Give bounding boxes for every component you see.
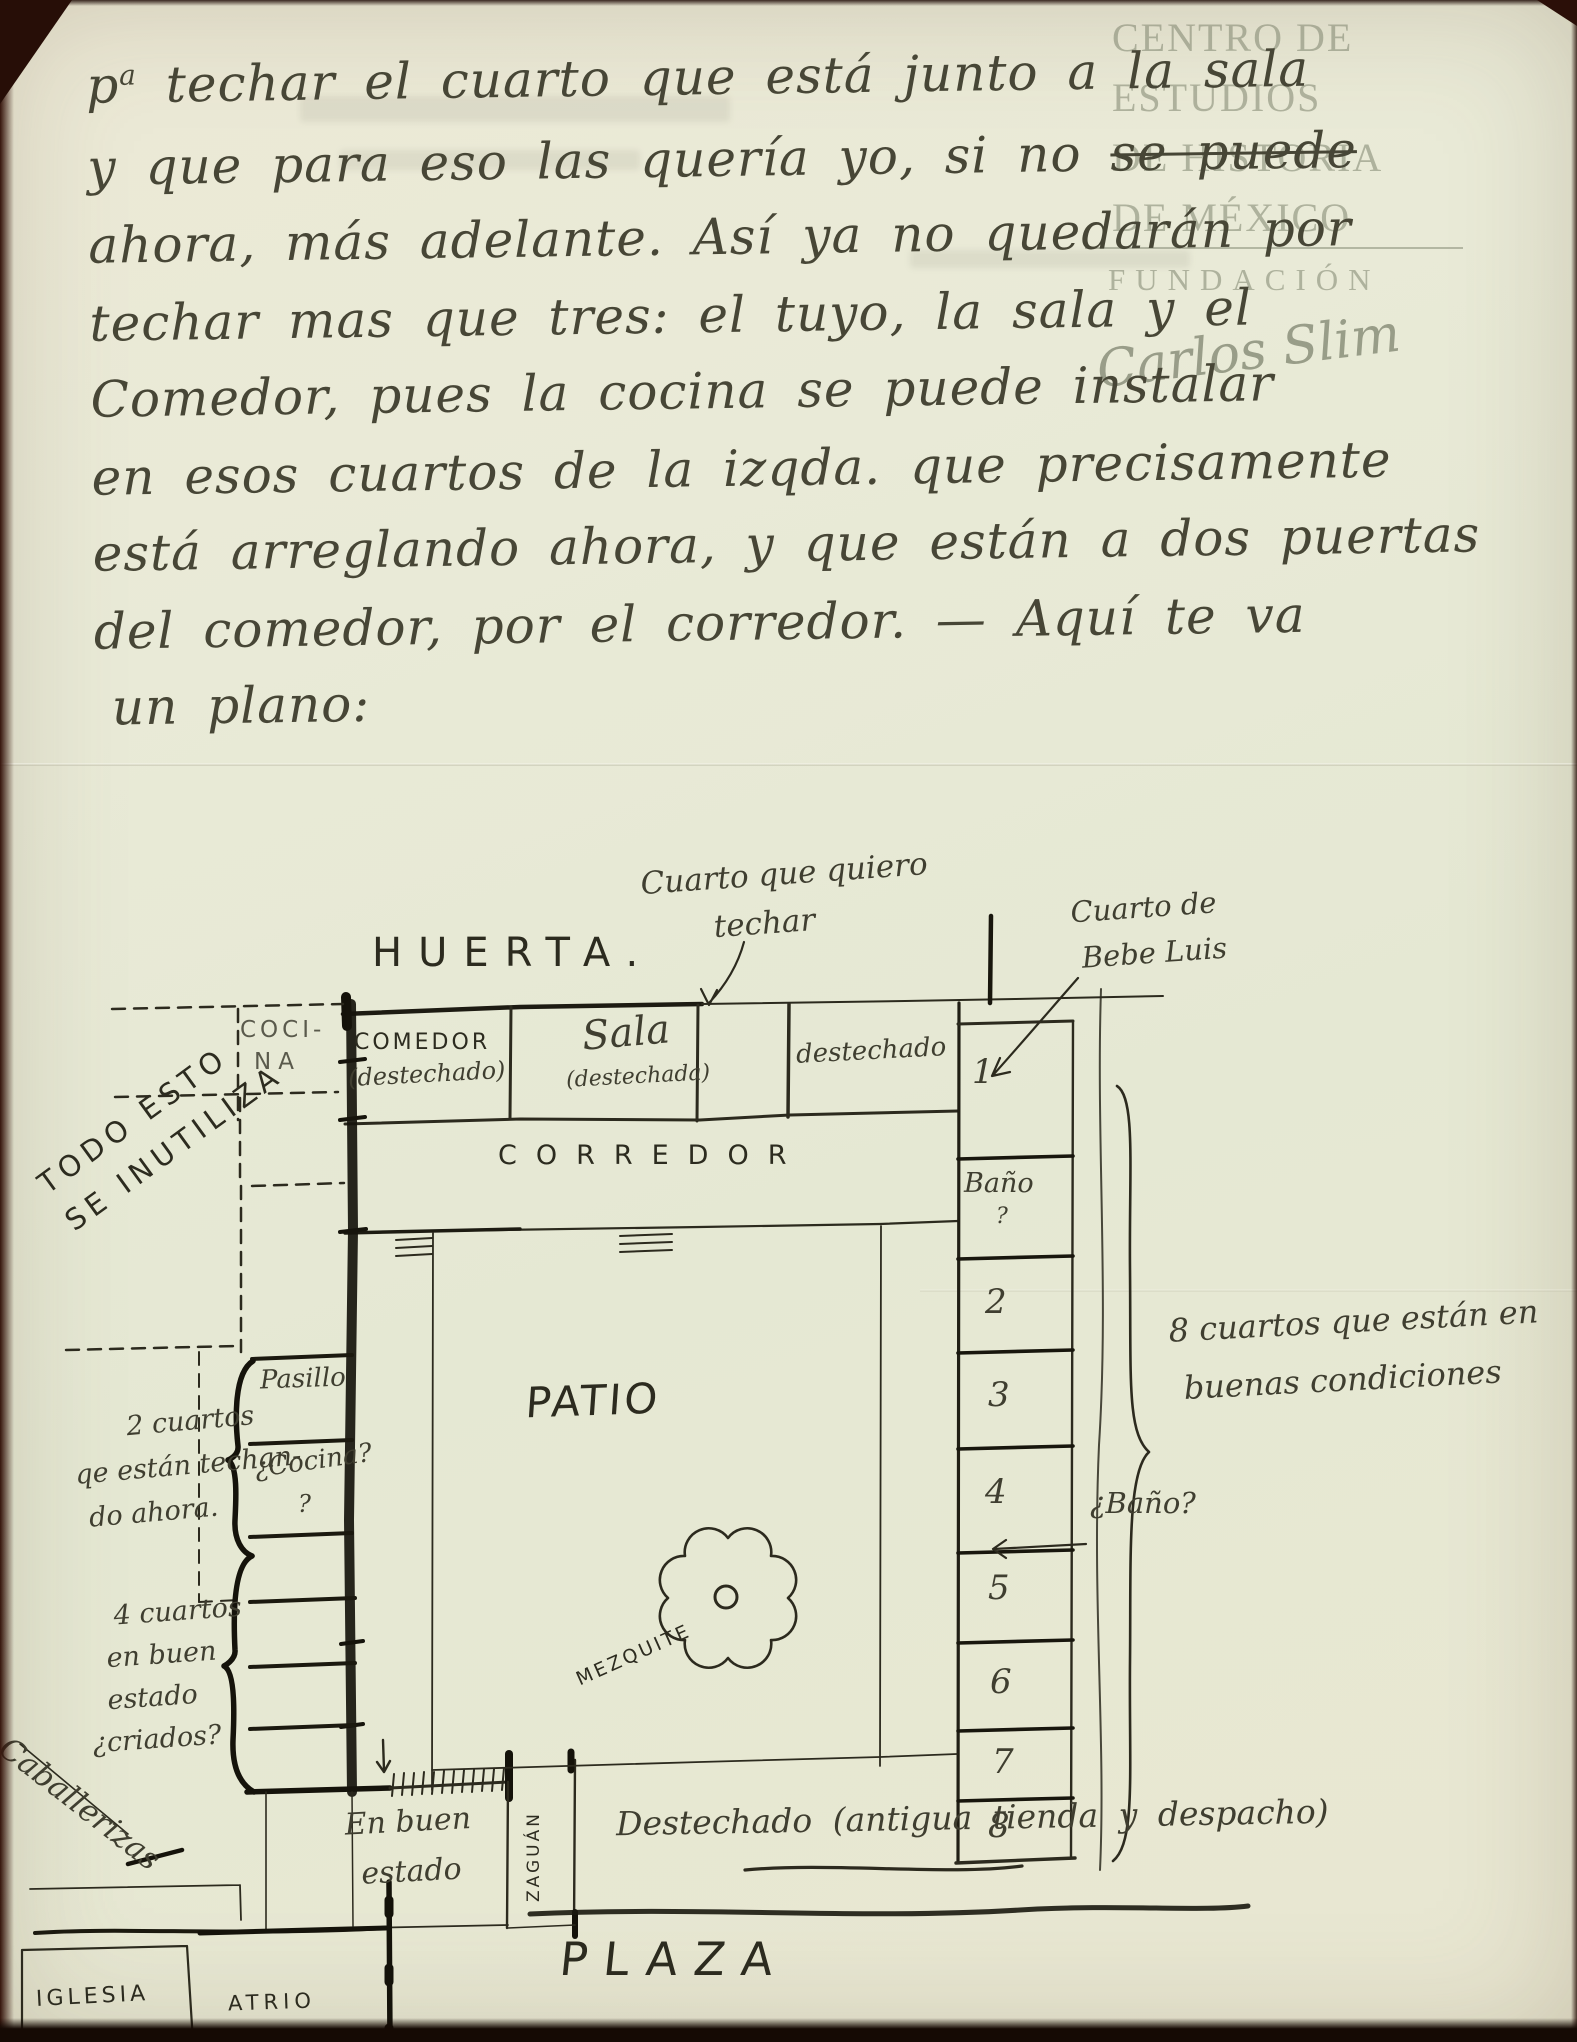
room-bano-question: ? — [996, 1204, 1008, 1229]
room-number-1: 1 — [972, 1052, 994, 1092]
manuscript-page: CENTRO DE ESTUDIOS DE HISTORIA DE MÉXICO… — [0, 0, 1577, 2042]
letter-line: un plano: — [111, 675, 370, 737]
scan-edge — [0, 0, 1577, 6]
annotation-bano-arrow: ¿Baño? — [1090, 1486, 1196, 1520]
label-comedor: COMEDOR — [354, 1030, 490, 1055]
room-bano-label: Baño — [964, 1168, 1034, 1199]
annotation-dos-cuartos: 2 cuartos qe están techan- do ahora. — [70, 1390, 307, 1541]
label-sala: Sala — [580, 1006, 672, 1059]
annotation-ocho-cuartos: 8 cuartos que están en buenas condicione… — [1167, 1282, 1543, 1417]
room-number-5: 5 — [988, 1568, 1010, 1608]
label-corredor: CORREDOR — [498, 1140, 806, 1171]
label-huerta: HUERTA. — [372, 930, 654, 976]
paper-fold-crease — [0, 763, 1577, 766]
room-number-2: 2 — [985, 1282, 1007, 1322]
room-number-6: 6 — [990, 1662, 1012, 1702]
room-number-3: 3 — [988, 1375, 1010, 1415]
scan-edge — [0, 2018, 1577, 2042]
room-en-buen-estado: En buen estado — [315, 1794, 474, 1902]
label-patio: PATIO — [524, 1374, 662, 1428]
annotation-cuarto-que-quiero-techar: Cuarto que quiero techar — [639, 840, 933, 956]
scan-edge — [1571, 0, 1577, 2042]
label-plaza: PLAZA — [557, 1932, 792, 1986]
label-atrio: ATRIO — [228, 1988, 317, 2015]
room-number-4: 4 — [985, 1472, 1007, 1512]
room-pasillo: Pasillo — [260, 1363, 347, 1396]
annotation-cuatro-cuartos: 4 cuartos en buen estado ¿criados? — [82, 1587, 252, 1766]
annotation-cuarto-de-bebe-luis: Cuarto de Bebe Luis — [1069, 879, 1229, 981]
scan-edge — [0, 0, 14, 2042]
room-number-7: 7 — [992, 1742, 1014, 1782]
room-zaguan: ZAGUÁN — [524, 1811, 544, 1902]
